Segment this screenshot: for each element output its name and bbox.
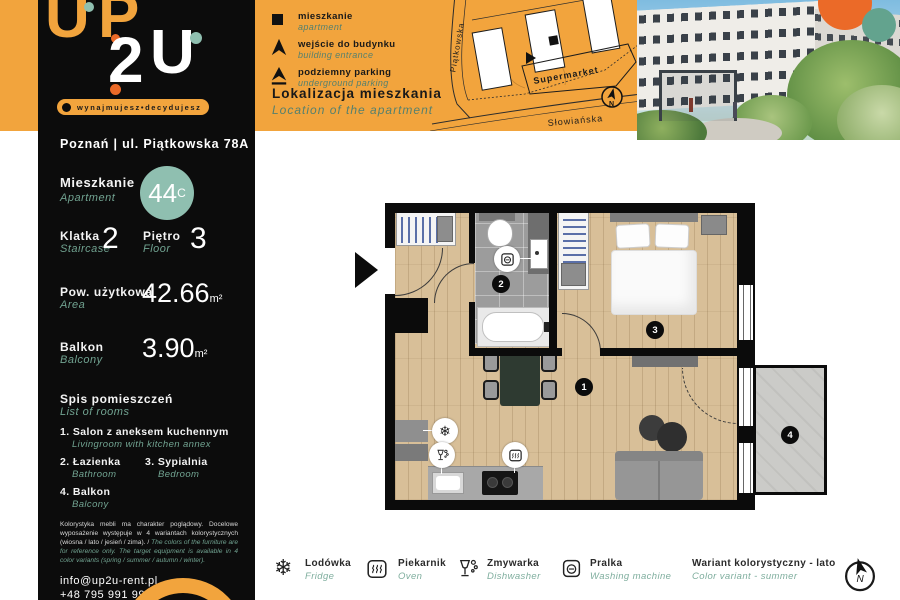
floor-label-en: Floor bbox=[143, 243, 171, 256]
fridge-icon: ❄ bbox=[432, 418, 458, 444]
dining-chair bbox=[541, 380, 557, 400]
wall-bathroom-left-lower bbox=[469, 302, 475, 348]
toilet-bowl bbox=[487, 219, 513, 247]
wall-bottom bbox=[385, 500, 755, 510]
apartment-number: 44 bbox=[148, 178, 177, 209]
kitchen-sink-bowl bbox=[436, 476, 460, 490]
location-title-pl: Lokalizacja mieszkania bbox=[272, 86, 442, 101]
sidebar: U P 2 U wynajmujesz•decydujesz Poznań | … bbox=[38, 0, 255, 600]
legend-apartment-pl: mieszkanie bbox=[298, 12, 353, 22]
bathtub bbox=[477, 307, 551, 347]
oven-label-en: Oven bbox=[398, 571, 422, 582]
pill-dot-icon bbox=[62, 103, 71, 112]
bed-pillow bbox=[655, 223, 690, 248]
bed-duvet bbox=[611, 250, 697, 315]
contact-email[interactable]: info@up2u-rent.pl bbox=[60, 574, 158, 588]
room-item-2-en: Bathroom bbox=[72, 469, 116, 480]
wall-left-upper bbox=[385, 203, 395, 248]
balcony-door bbox=[737, 368, 755, 426]
wall-right-2 bbox=[737, 340, 755, 368]
map-building-1 bbox=[472, 28, 512, 90]
svg-text:N: N bbox=[609, 101, 614, 108]
apartment-number-badge: 44C bbox=[140, 166, 194, 220]
washing-machine-icon bbox=[494, 246, 520, 272]
site-map: Supermarket Piątkowska Słowiańska N bbox=[430, 0, 640, 131]
rooms-header-pl: Spis pomieszczeń bbox=[60, 392, 173, 406]
disclaimer: Kolorystyka mebli ma charakter poglądowy… bbox=[60, 520, 238, 565]
logo-dot-teal bbox=[84, 2, 94, 12]
room-item-1-pl: 1. Salon z aneksem kuchennym bbox=[60, 426, 229, 438]
room-badge-bedroom: 3 bbox=[646, 321, 664, 339]
room-item-3-en: Bedroom bbox=[158, 469, 199, 480]
logo-dot-orange2 bbox=[110, 84, 121, 95]
logo-tagline-pill: wynajmujesz•decydujesz bbox=[57, 99, 209, 115]
dining-table bbox=[500, 350, 540, 406]
icon-connector bbox=[514, 468, 515, 473]
room-item-1-en: Livingroom with kitchen annex bbox=[72, 439, 211, 450]
kitchen-hob bbox=[482, 471, 518, 495]
entrance-arrow-icon bbox=[270, 38, 288, 56]
washing-label-pl: Pralka bbox=[590, 558, 622, 570]
bed bbox=[610, 213, 698, 317]
bedroom-window bbox=[737, 285, 755, 340]
wall-left-notch bbox=[385, 298, 428, 333]
variant-label-en: Color variant - summer bbox=[692, 571, 797, 582]
bedroom-wardrobe-box bbox=[561, 263, 586, 286]
dishwasher-legend-icon bbox=[456, 557, 480, 581]
apartment-label-pl: Mieszkanie bbox=[60, 176, 135, 190]
washing-machine-legend-icon bbox=[561, 558, 582, 579]
staircase-value: 2 bbox=[102, 222, 119, 256]
floor-label-pl: Piętro bbox=[143, 229, 181, 243]
wall-top bbox=[385, 203, 755, 213]
apartment-suffix: C bbox=[177, 186, 186, 200]
room-badge-living: 1 bbox=[575, 378, 593, 396]
wall-living-divider-left bbox=[469, 348, 562, 356]
legend-entrance-en: building entrance bbox=[298, 50, 373, 60]
hob-burner bbox=[502, 477, 513, 488]
address: Poznań | ul. Piątkowska 78A bbox=[60, 137, 249, 151]
room-item-2-pl: 2. Łazienka bbox=[60, 456, 120, 468]
room-badge-bathroom: 2 bbox=[492, 275, 510, 293]
parking-arrow-icon bbox=[270, 66, 288, 86]
bed-pillow bbox=[615, 223, 650, 249]
oven-label-pl: Piekarnik bbox=[398, 558, 446, 570]
sofa-backrest bbox=[615, 451, 703, 461]
bed-headboard bbox=[610, 213, 698, 222]
staircase-label-pl: Klatka bbox=[60, 229, 100, 243]
variant-label-pl: Wariant kolorystyczny - lato bbox=[692, 558, 836, 570]
wall-right-1 bbox=[737, 203, 755, 285]
wall-right-4 bbox=[737, 493, 755, 510]
rooms-header-en: List of rooms bbox=[60, 406, 129, 419]
apartment-marker bbox=[548, 35, 558, 45]
logo-letter-2: 2 bbox=[108, 28, 144, 92]
apartment-label-en: Apartment bbox=[60, 192, 115, 205]
location-title-en: Location of the apartment bbox=[272, 103, 433, 117]
wall-right-3 bbox=[737, 426, 755, 443]
svg-text:N: N bbox=[856, 574, 864, 585]
dishwasher-label-pl: Zmywarka bbox=[487, 558, 539, 570]
living-window bbox=[737, 443, 755, 493]
map-building-2 bbox=[525, 10, 565, 72]
room-item-3-pl: 3. Sypialnia bbox=[145, 456, 208, 468]
wall-bathroom-left-upper bbox=[469, 212, 475, 263]
up2u-logo: U P 2 U bbox=[38, 0, 255, 100]
oven-icon bbox=[502, 442, 528, 468]
sink-faucet bbox=[535, 251, 539, 255]
room-item-4-pl: 4. Balkon bbox=[60, 486, 110, 498]
map-building-3 bbox=[582, 0, 619, 53]
oven-legend-icon bbox=[366, 558, 388, 580]
apartment-square-icon bbox=[272, 14, 283, 25]
fridge-label-en: Fridge bbox=[305, 571, 334, 582]
wall-bathroom-right bbox=[549, 212, 557, 348]
balcony-label-pl: Balkon bbox=[60, 340, 104, 354]
dishwasher-label-en: Dishwasher bbox=[487, 571, 541, 582]
bathroom-sink bbox=[530, 239, 548, 269]
bathtub-basin bbox=[482, 312, 544, 342]
logo-dot-teal2 bbox=[190, 32, 202, 44]
icon-connector bbox=[520, 258, 538, 259]
dishwasher-icon bbox=[429, 442, 455, 468]
sofa bbox=[615, 451, 703, 500]
area-label-en: Area bbox=[60, 299, 85, 312]
footer-legend: ❄ Lodówka Fridge Piekarnik Oven Zmywarka… bbox=[260, 540, 900, 600]
photo-pergola bbox=[659, 70, 737, 121]
legend-parking-pl: podziemny parking bbox=[298, 68, 391, 78]
coffee-table bbox=[657, 422, 687, 452]
map-compass-icon: N bbox=[602, 87, 622, 108]
kitchen-fridge-cabinet bbox=[395, 444, 428, 461]
fridge-label-pl: Lodówka bbox=[305, 558, 351, 570]
kitchen-sink-unit bbox=[432, 472, 464, 494]
floor-value: 3 bbox=[190, 222, 207, 256]
footer-compass-icon: N bbox=[840, 554, 880, 594]
kitchen-tall-cabinet bbox=[395, 420, 428, 442]
fridge-legend-icon: ❄ bbox=[274, 557, 292, 579]
legend-entrance-pl: wejście do budynku bbox=[298, 40, 395, 50]
logo-tagline: wynajmujesz•decydujesz bbox=[77, 103, 202, 112]
photo-person bbox=[733, 102, 737, 118]
room-item-4-en: Balcony bbox=[72, 499, 109, 510]
balcony-value: 3.90m² bbox=[142, 333, 207, 364]
dining-chair bbox=[483, 380, 499, 400]
area-value: 42.66m² bbox=[142, 278, 222, 309]
hob-burner bbox=[487, 477, 498, 488]
wall-living-divider-right bbox=[600, 348, 737, 356]
nightstand bbox=[701, 215, 727, 235]
room-badge-balcony: 4 bbox=[781, 426, 799, 444]
street-slowianska-label: Słowiańska bbox=[547, 113, 603, 128]
apartment-offer-card: mieszkanie apartment wejście do budynku … bbox=[0, 0, 900, 600]
floor-plan: ❄ 1 2 3 4 bbox=[385, 203, 845, 513]
deco-teal-circle bbox=[862, 8, 896, 42]
area-label-pl: Pow. użytkowa bbox=[60, 285, 153, 299]
legend-apartment-en: apartment bbox=[298, 22, 342, 32]
sofa-seam bbox=[658, 461, 660, 500]
logo-letter-u2: U bbox=[150, 22, 195, 84]
balcony-label-en: Balcony bbox=[60, 354, 103, 367]
hall-wardrobe-box bbox=[437, 216, 453, 242]
icon-connector bbox=[441, 468, 442, 474]
washing-label-en: Washing machine bbox=[590, 571, 671, 582]
photo-person bbox=[689, 98, 693, 112]
icon-connector bbox=[423, 430, 432, 431]
plan-entrance-arrow-icon bbox=[355, 252, 378, 288]
